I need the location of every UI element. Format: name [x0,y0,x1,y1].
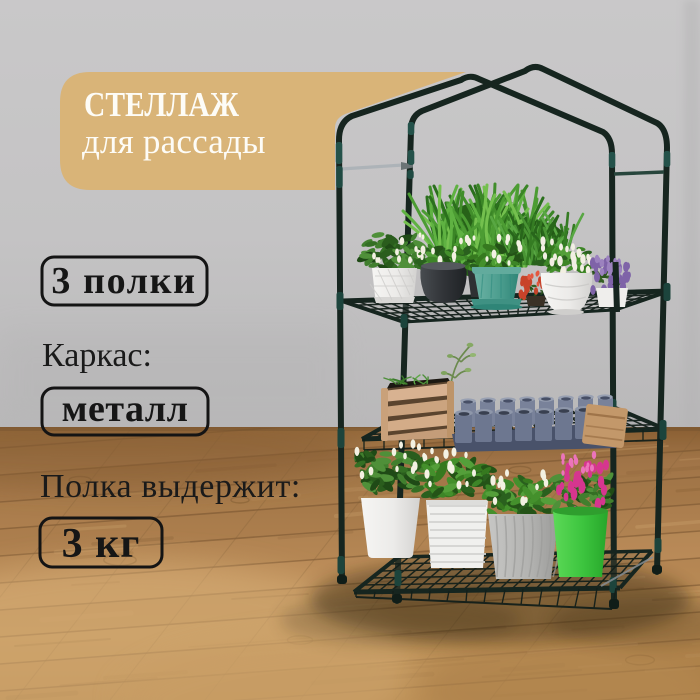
svg-text:для рассады: для рассады [82,122,266,161]
svg-text:3 полки: 3 полки [51,260,196,302]
svg-text:СТЕЛЛАЖ: СТЕЛЛАЖ [84,85,239,124]
svg-text:3 кг: 3 кг [62,521,141,567]
svg-text:металл: металл [62,388,189,430]
svg-text:Каркас:: Каркас: [42,337,152,374]
svg-text:Полка выдержит:: Полка выдержит: [40,468,301,505]
